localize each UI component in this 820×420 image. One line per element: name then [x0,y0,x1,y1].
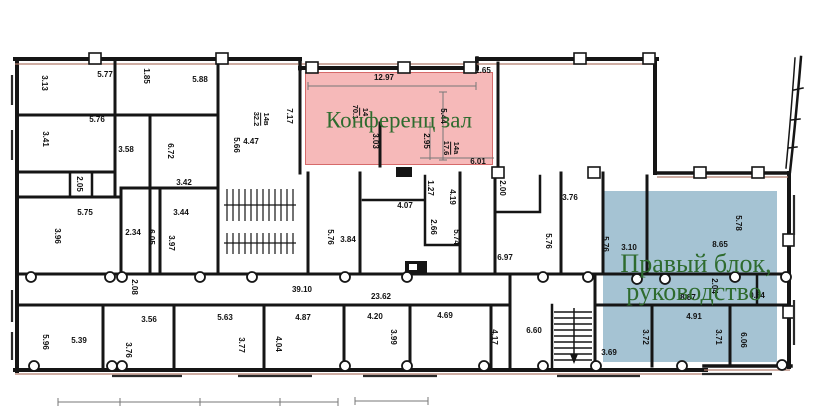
dimension-label: 6.05 [147,229,155,245]
dimension-label: 1.85 [142,68,150,84]
dimension-label: 5.96 [41,334,49,350]
dimension-label: 6.60 [526,327,542,335]
dimension-label: 3.77 [237,337,245,353]
dimension-label: 6.97 [497,254,513,262]
dimension-label: 3.97 [167,235,175,251]
dimension-label: 4.19 [448,189,456,205]
dimension-label: 3.76 [562,194,578,202]
floor-plan: 5.773.131.855.885.763.413.586.723.422.05… [0,0,820,420]
dimension-label: 2.08 [130,279,138,295]
dimension-label: 3.03 [371,133,379,149]
dimension-label: 6.01 [470,158,486,166]
dimension-label: 2.05 [75,176,83,192]
dimension-label: 39.10 [292,286,312,294]
dimension-label: 8.65 [712,241,728,249]
dimension-label: 4.91 [686,313,702,321]
dimension-label: 3.76 [124,342,132,358]
dimension-label: 7.17 [285,108,293,124]
dimension-label: 5.78 [734,215,742,231]
dimension-label: 3.72 [641,329,649,345]
dimension-label: 4.07 [397,202,413,210]
dimension-label: 1.65 [475,67,491,75]
dimension-label: 5.77 [97,71,113,79]
dimension-label: 3.42 [176,179,192,187]
dimension-label: 4.20 [367,313,383,321]
dimension-label: 3.13 [40,75,48,91]
dimension-label: 5.76 [326,229,334,245]
dimension-label: 2.34 [125,229,141,237]
right-block-label-line1: Правый блок, [620,251,771,277]
dimension-label: 3.69 [601,349,617,357]
dimension-label: 4.69 [437,312,453,320]
dimension-label: 5.63 [217,314,233,322]
dimension-label: 12.97 [374,74,394,82]
dimension-label: 3.99 [389,329,397,345]
dimension-label: 3.96 [53,228,61,244]
dimension-label: 5.76 [544,233,552,249]
dimension-label: 2.00 [498,180,506,196]
dimension-labels-layer: 5.773.131.855.885.763.413.586.723.422.05… [0,0,820,420]
dimension-label: 5.75 [77,209,93,217]
dimension-label: 2.95 [422,133,430,149]
dimension-label: 3.71 [714,329,722,345]
dimension-label: 4.17 [490,329,498,345]
dimension-label: 3.44 [173,209,189,217]
dimension-label: 5.76 [601,236,609,252]
dimension-label: 3.58 [118,146,134,154]
dimension-label: 5.39 [71,337,87,345]
conference-zone-label: Конференц зал [326,109,472,132]
dimension-label: 2.66 [429,219,437,235]
dimension-label: 5.88 [192,76,208,84]
room-tag: 14в32.2 [252,112,270,127]
dimension-label: 23.62 [371,293,391,301]
dimension-label: 6.72 [166,143,174,159]
dimension-label: 4.87 [295,314,311,322]
dimension-label: 5.74 [452,229,460,245]
dimension-label: 3.41 [41,131,49,147]
dimension-label: 3.84 [340,236,356,244]
dimension-label: 5.66 [232,137,240,153]
dimension-label: 5.76 [89,116,105,124]
dimension-label: 4.04 [274,336,282,352]
room-tag: 14а17.6 [442,141,460,156]
right-block-label-line2: руководство [626,279,762,305]
dimension-label: 4.47 [243,138,259,146]
dimension-label: 1.27 [426,180,434,196]
dimension-label: 6.06 [739,332,747,348]
dimension-label: 3.56 [141,316,157,324]
